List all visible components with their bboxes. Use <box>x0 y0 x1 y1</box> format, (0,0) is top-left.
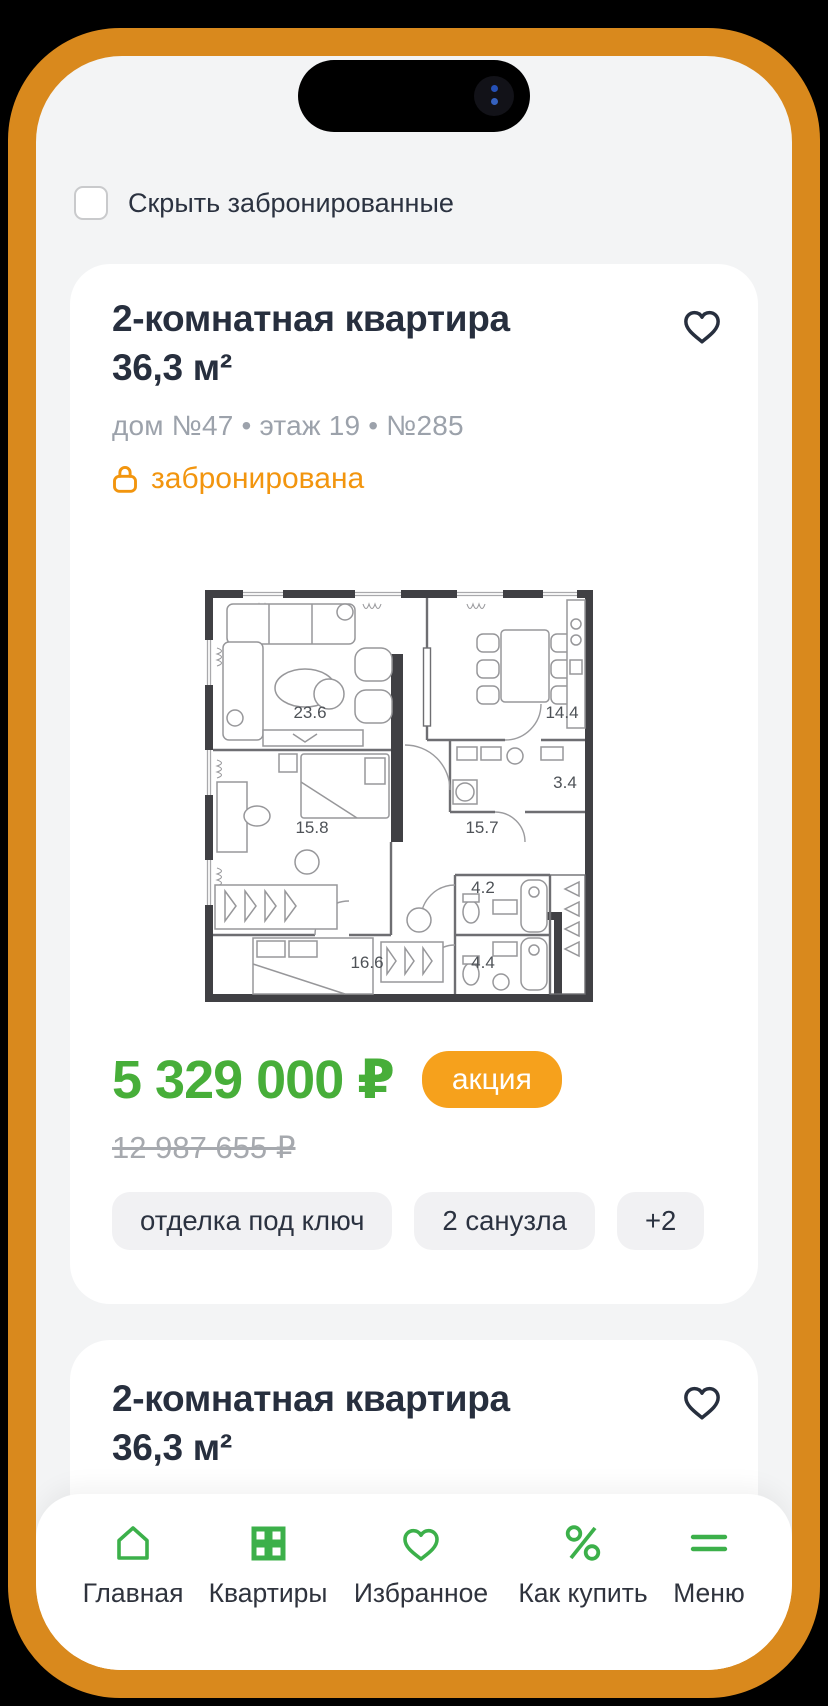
phone-frame: Скрыть забронированные 2-комнатная кварт… <box>8 28 820 1698</box>
room-area-label: 15.7 <box>465 818 498 837</box>
apartment-card[interactable]: 2-комнатная квартира 36,3 м² дом №47 • э… <box>70 264 758 1304</box>
lock-icon <box>112 464 138 494</box>
booking-status-text: забронирована <box>151 462 364 496</box>
price: 5 329 000 ₽ <box>112 1048 394 1111</box>
heart-icon <box>680 1380 724 1424</box>
app-screen: Скрыть забронированные 2-комнатная кварт… <box>36 56 792 1670</box>
front-camera-icon <box>474 76 514 116</box>
percent-icon <box>560 1520 606 1566</box>
grid-icon <box>245 1520 291 1566</box>
room-area-label: 4.2 <box>471 878 495 897</box>
tag-finish: отделка под ключ <box>112 1192 392 1250</box>
room-area-label: 14.4 <box>545 703 578 722</box>
nav-item-apartments[interactable]: Квартиры <box>183 1520 353 1609</box>
apartment-title: 2-комнатная квартира 36,3 м² <box>112 1374 672 1472</box>
hide-booked-checkbox[interactable] <box>74 186 108 220</box>
apartment-title: 2-комнатная квартира 36,3 м² <box>112 294 672 392</box>
favorite-button[interactable] <box>680 1380 724 1424</box>
promo-badge: акция <box>422 1051 562 1108</box>
hide-booked-label: Скрыть забронированные <box>128 188 454 219</box>
room-area-label: 15.8 <box>295 818 328 837</box>
apartment-meta: дом №47 • этаж 19 • №285 <box>112 410 464 442</box>
nav-item-favorites[interactable]: Избранное <box>336 1520 506 1609</box>
room-area-label: 23.6 <box>293 703 326 722</box>
tag-bathrooms: 2 санузла <box>414 1192 595 1250</box>
heart-icon <box>680 304 724 348</box>
room-area-label: 16.6 <box>350 953 383 972</box>
menu-icon <box>686 1520 732 1566</box>
home-icon <box>110 1520 156 1566</box>
floor-plan: 23.6 14.4 3.4 15.8 15.7 4.2 16.6 4.4 <box>205 590 593 1002</box>
old-price: 12 987 655 ₽ <box>112 1130 296 1166</box>
room-area-label: 4.4 <box>471 953 495 972</box>
favorite-button[interactable] <box>680 304 724 348</box>
booking-status: забронирована <box>112 462 364 496</box>
tag-more[interactable]: +2 <box>617 1192 704 1250</box>
bottom-nav: Главная Квартиры Избранное <box>36 1494 792 1670</box>
notch <box>298 60 530 132</box>
hide-booked-toggle[interactable]: Скрыть забронированные <box>74 186 454 220</box>
heart-icon <box>398 1520 444 1566</box>
room-area-label: 3.4 <box>553 773 577 792</box>
feature-tags: отделка под ключ 2 санузла +2 <box>112 1192 704 1250</box>
nav-item-menu[interactable]: Меню <box>624 1520 792 1609</box>
